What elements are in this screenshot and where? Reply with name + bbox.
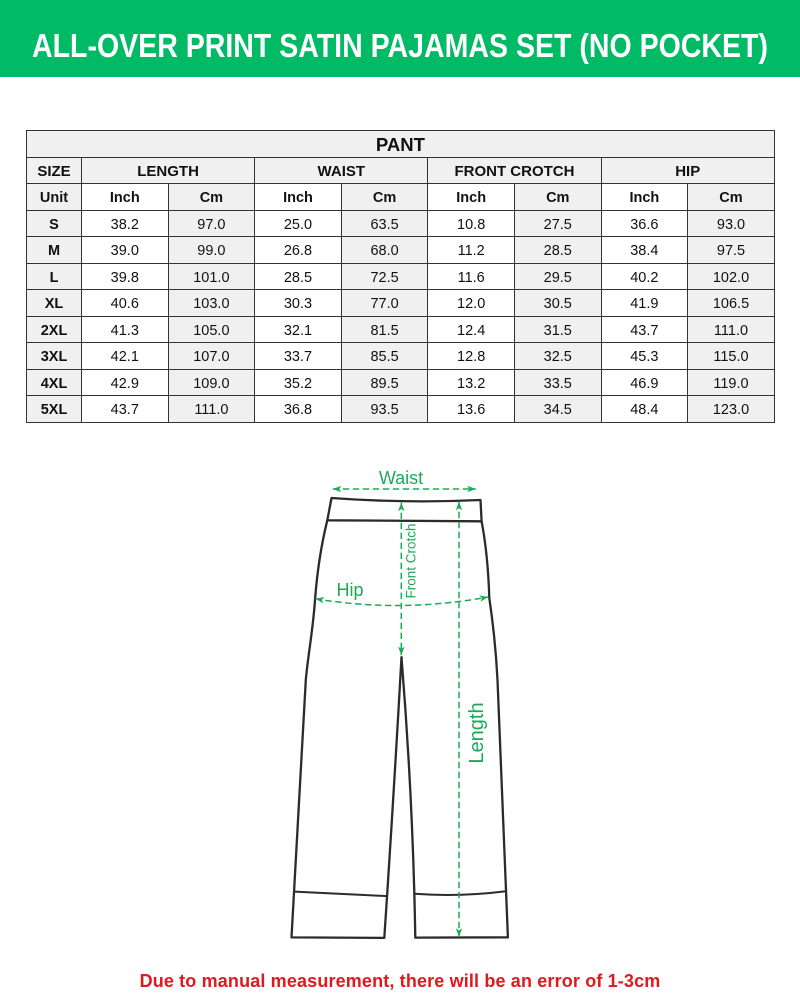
svg-text:Waist: Waist (379, 468, 423, 488)
svg-text:Hip: Hip (336, 580, 363, 600)
svg-text:Front Crotch: Front Crotch (404, 523, 419, 598)
svg-text:Length: Length (466, 702, 488, 763)
